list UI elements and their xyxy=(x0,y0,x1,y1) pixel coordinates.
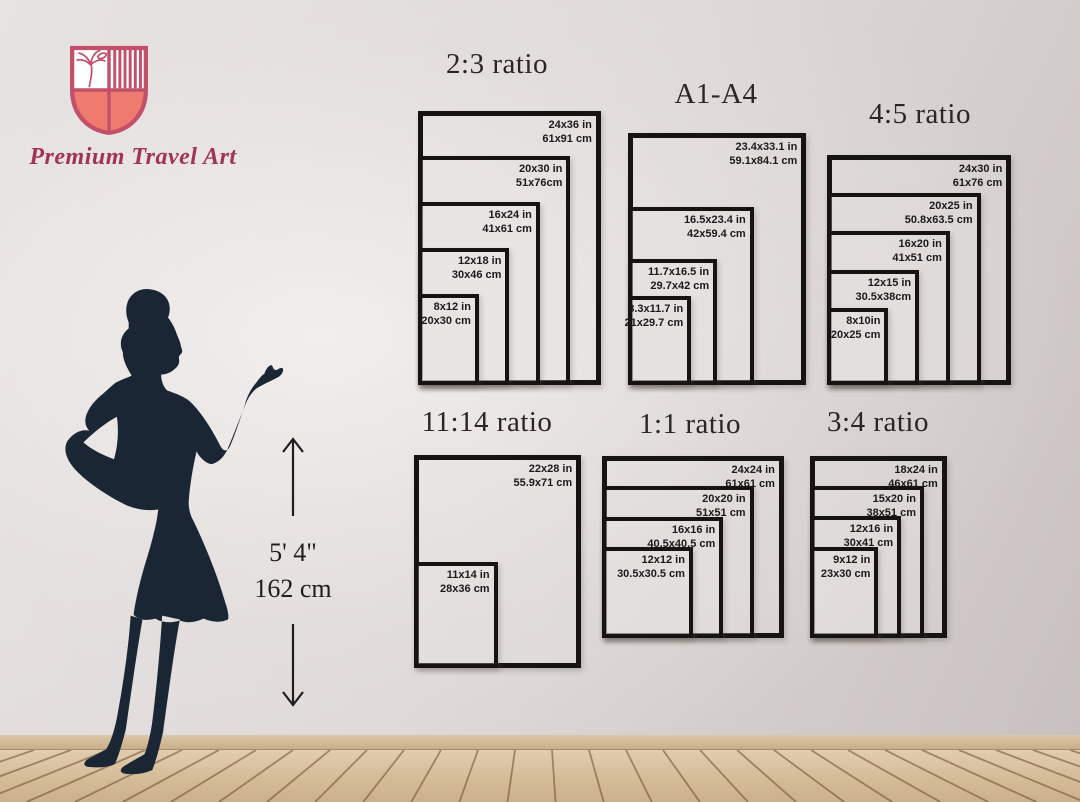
size-cm: 28x36 cm xyxy=(440,582,490,596)
size-inches: 24x30 in xyxy=(953,162,1003,176)
size-label: 22x28 in55.9x71 cm xyxy=(513,462,572,490)
size-box: 9x12 in23x30 cm xyxy=(810,547,878,638)
size-cm: 50.8x63.5 cm xyxy=(905,213,973,227)
size-label: 8x12 in20x30 cm xyxy=(421,300,471,328)
plank-seam xyxy=(552,750,556,802)
size-label: 12x12 in30.5x30.5 cm xyxy=(617,553,685,581)
size-cm: 20x25 cm xyxy=(831,328,881,342)
plank-seam xyxy=(363,750,404,802)
size-label: 20x30 in51x76cm xyxy=(516,162,563,190)
size-box: 8x10in20x25 cm xyxy=(827,308,888,385)
size-inches: 9x12 in xyxy=(821,553,871,567)
plank-seam xyxy=(1033,750,1080,802)
size-box: 8.3x11.7 in21x29.7 cm xyxy=(628,296,691,385)
plank-seam xyxy=(848,750,940,802)
size-label: 16x20 in41x51 cm xyxy=(892,237,942,265)
plank-seam xyxy=(508,750,516,802)
size-label: 8x10in20x25 cm xyxy=(831,314,881,342)
size-inches: 16x24 in xyxy=(482,208,532,222)
size-box: 8x12 in20x30 cm xyxy=(418,294,479,385)
size-label: 23.4x33.1 in59.1x84.1 cm xyxy=(729,140,797,168)
size-cm: 41x51 cm xyxy=(892,251,942,265)
size-label: 11x14 in28x36 cm xyxy=(440,568,490,596)
size-box: 11x14 in28x36 cm xyxy=(414,562,498,668)
size-inches: 18x24 in xyxy=(888,463,938,477)
size-inches: 12x18 in xyxy=(452,254,502,268)
size-inches: 20x30 in xyxy=(516,162,563,176)
size-cm: 23x30 cm xyxy=(821,567,871,581)
plank-seam xyxy=(737,750,796,802)
height-imperial: 5' 4" xyxy=(213,538,373,568)
plank-seam xyxy=(885,750,989,802)
size-inches: 16x20 in xyxy=(892,237,942,251)
size-inches: 24x24 in xyxy=(725,463,775,477)
size-group: 22x28 in55.9x71 cm11x14 in28x36 cm xyxy=(414,455,581,668)
plank-seam xyxy=(1070,750,1080,802)
group-title: 11:14 ratio xyxy=(422,406,553,439)
size-inches: 8.3x11.7 in xyxy=(625,302,684,316)
size-inches: 8x12 in xyxy=(421,300,471,314)
size-cm: 61x91 cm xyxy=(542,132,592,146)
height-indicator: 5' 4" 162 cm xyxy=(243,430,343,710)
size-group: 23.4x33.1 in59.1x84.1 cm16.5x23.4 in42x5… xyxy=(628,133,806,385)
size-label: 24x30 in61x76 cm xyxy=(953,162,1003,190)
size-label: 20x25 in50.8x63.5 cm xyxy=(905,199,973,227)
size-cm: 51x76cm xyxy=(516,176,563,190)
size-group: 24x36 in61x91 cm20x30 in51x76cm16x24 in4… xyxy=(418,111,601,385)
size-cm: 59.1x84.1 cm xyxy=(729,154,797,168)
size-inches: 11.7x16.5 in xyxy=(648,265,709,279)
size-cm: 20x30 cm xyxy=(421,314,471,328)
size-cm: 30x46 cm xyxy=(452,268,502,282)
arrow-down-icon xyxy=(277,622,309,710)
plank-seam xyxy=(459,750,478,802)
plank-seam xyxy=(663,750,700,802)
poster-size-guide: Premium Travel Art 5' 4" 162 cm 2:3 rati… xyxy=(0,0,1080,802)
brand-logo: Premium Travel Art xyxy=(28,40,238,180)
size-label: 8.3x11.7 in21x29.7 cm xyxy=(625,302,684,330)
size-inches: 12x12 in xyxy=(617,553,685,567)
size-inches: 20x20 in xyxy=(696,492,746,506)
size-label: 9x12 in23x30 cm xyxy=(821,553,871,581)
group-title: 1:1 ratio xyxy=(639,408,741,441)
size-cm: 30.5x30.5 cm xyxy=(617,567,685,581)
size-label: 16x24 in41x61 cm xyxy=(482,208,532,236)
plank-seam xyxy=(626,750,652,802)
size-inches: 24x36 in xyxy=(542,118,592,132)
size-group: 24x30 in61x76 cm20x25 in50.8x63.5 cm16x2… xyxy=(827,155,1011,385)
size-inches: 20x25 in xyxy=(905,199,973,213)
size-inches: 11x14 in xyxy=(440,568,490,582)
shield-logo-icon xyxy=(66,42,152,138)
size-inches: 16.5x23.4 in xyxy=(684,213,746,227)
size-group: 24x24 in61x61 cm20x20 in51x51 cm16x16 in… xyxy=(602,456,784,638)
plank-seam xyxy=(0,750,34,802)
size-group: 18x24 in46x61 cm15x20 in38x51 cm12x16 in… xyxy=(810,456,947,638)
size-inches: 12x16 in xyxy=(844,522,894,536)
size-inches: 23.4x33.1 in xyxy=(729,140,797,154)
plank-seam xyxy=(700,750,748,802)
group-title: A1-A4 xyxy=(674,78,757,111)
size-inches: 8x10in xyxy=(831,314,881,328)
size-inches: 22x28 in xyxy=(513,462,572,476)
size-cm: 29.7x42 cm xyxy=(648,279,709,293)
size-cm: 55.9x71 cm xyxy=(513,476,572,490)
size-inches: 12x15 in xyxy=(855,276,911,290)
size-cm: 42x59.4 cm xyxy=(684,227,746,241)
size-box: 12x12 in30.5x30.5 cm xyxy=(602,547,693,638)
size-cm: 21x29.7 cm xyxy=(625,316,684,330)
size-inches: 16x16 in xyxy=(647,523,715,537)
size-cm: 41x61 cm xyxy=(482,222,532,236)
arrow-up-icon xyxy=(277,434,309,518)
plank-seam xyxy=(411,750,441,802)
plank-seam xyxy=(315,750,367,802)
size-label: 16.5x23.4 in42x59.4 cm xyxy=(684,213,746,241)
size-label: 12x18 in30x46 cm xyxy=(452,254,502,282)
size-cm: 30.5x38cm xyxy=(855,290,911,304)
plank-seam xyxy=(774,750,844,802)
size-label: 12x15 in30.5x38cm xyxy=(855,276,911,304)
group-title: 2:3 ratio xyxy=(446,48,548,81)
group-title: 3:4 ratio xyxy=(827,406,929,439)
size-label: 11.7x16.5 in29.7x42 cm xyxy=(648,265,709,293)
height-metric: 162 cm xyxy=(213,574,373,604)
size-cm: 61x76 cm xyxy=(953,176,1003,190)
size-label: 24x36 in61x91 cm xyxy=(542,118,592,146)
size-inches: 15x20 in xyxy=(866,492,916,506)
brand-name: Premium Travel Art xyxy=(28,144,238,171)
group-title: 4:5 ratio xyxy=(869,98,971,131)
plank-seam xyxy=(811,750,892,802)
plank-seam xyxy=(589,750,604,802)
